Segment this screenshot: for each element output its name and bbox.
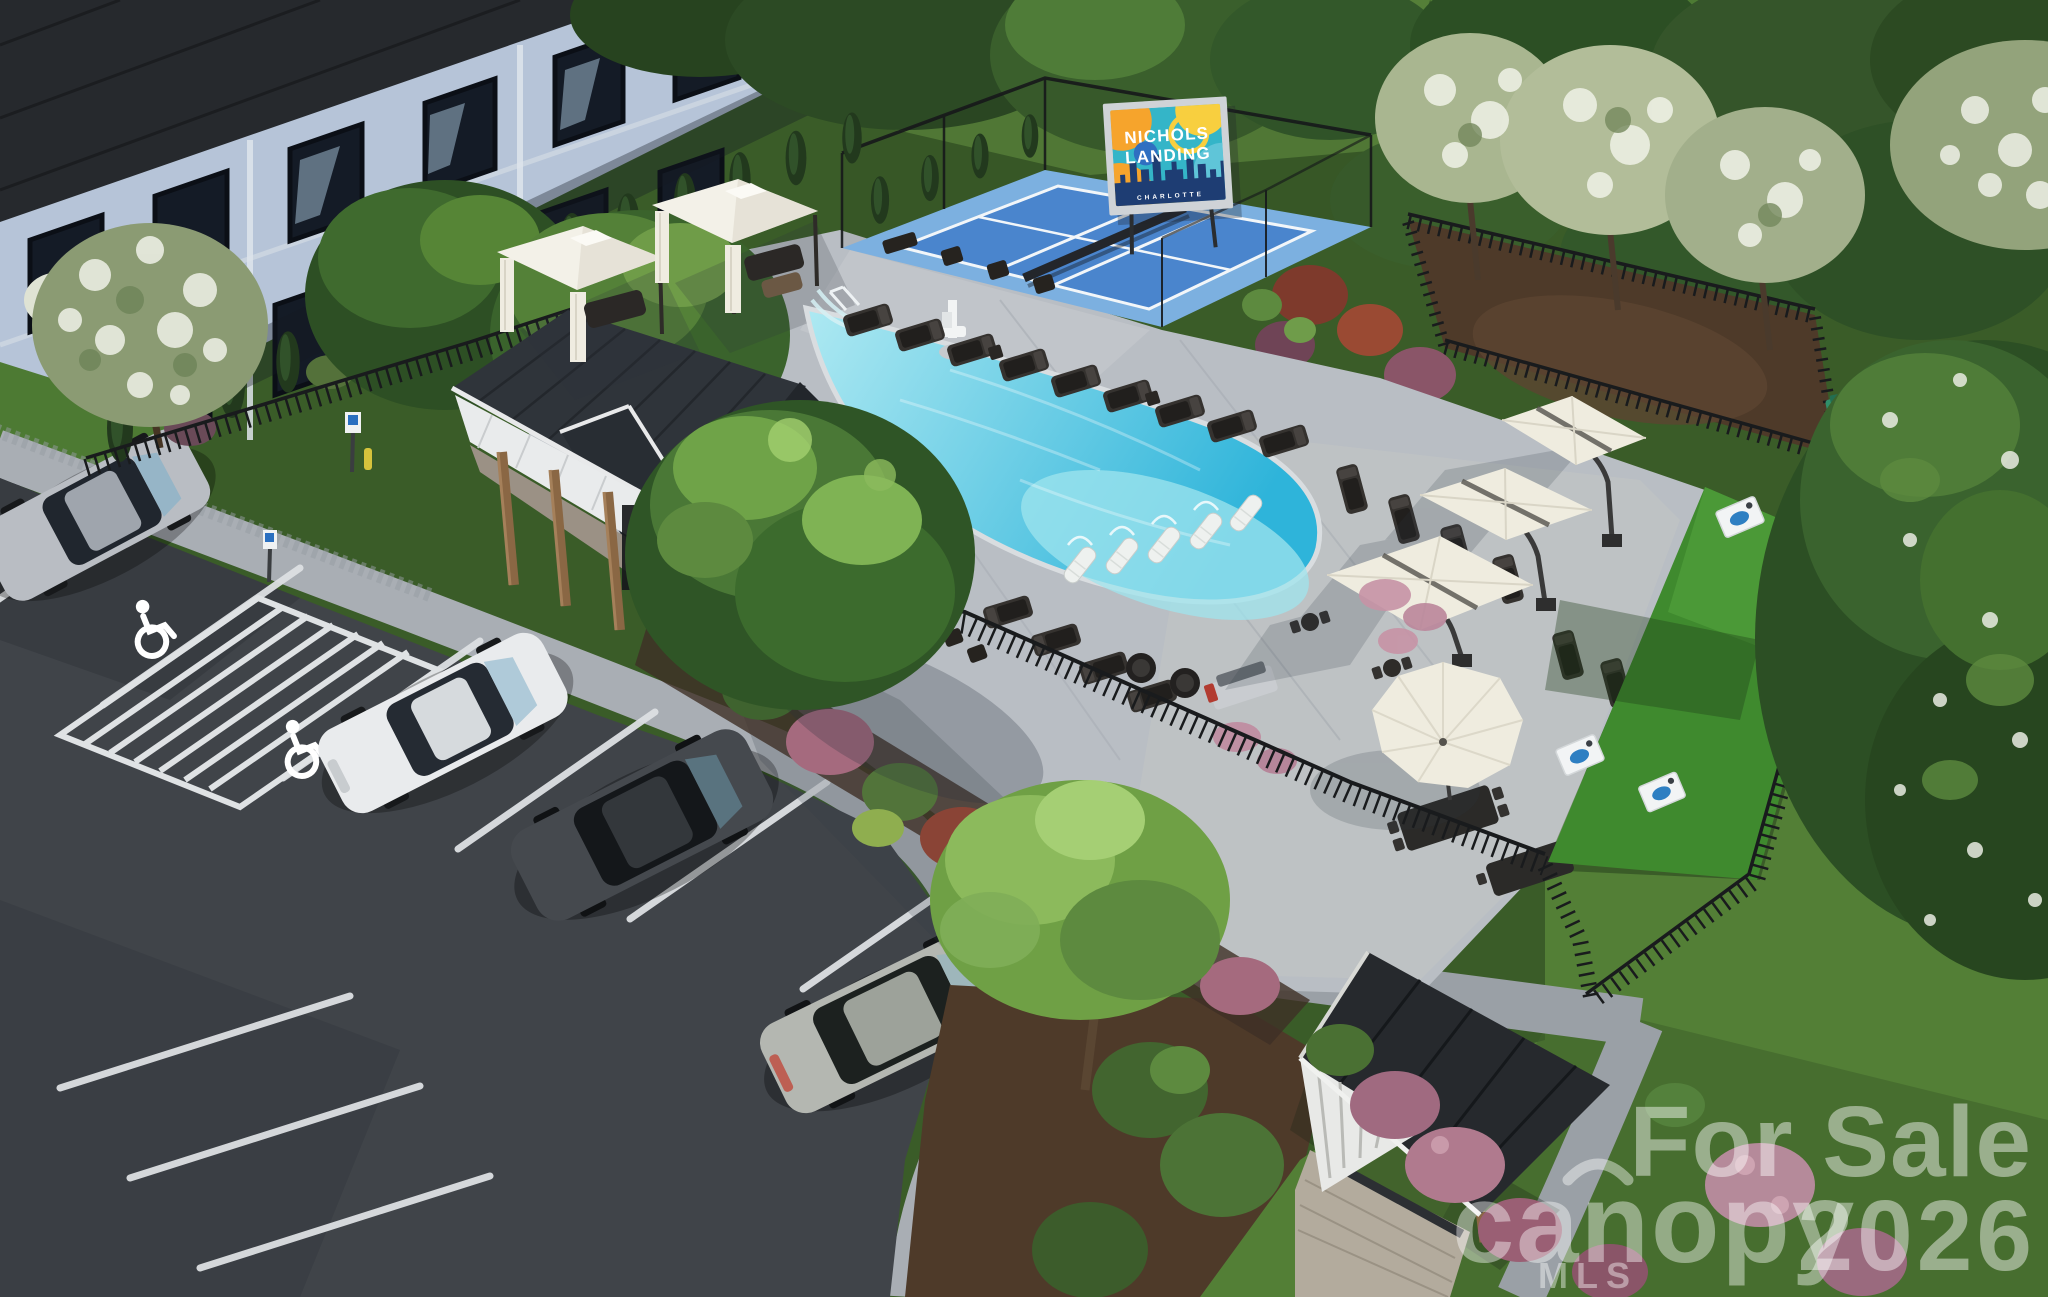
- aerial-rendering: NICHOLS LANDING CHARLOTTE: [0, 0, 2048, 1297]
- watermark-sale-line2: 2026: [1798, 1180, 2036, 1292]
- listing-photo: NICHOLS LANDING CHARLOTTE: [0, 0, 2048, 1297]
- watermark-brand-sub: MLS: [1538, 1255, 1638, 1296]
